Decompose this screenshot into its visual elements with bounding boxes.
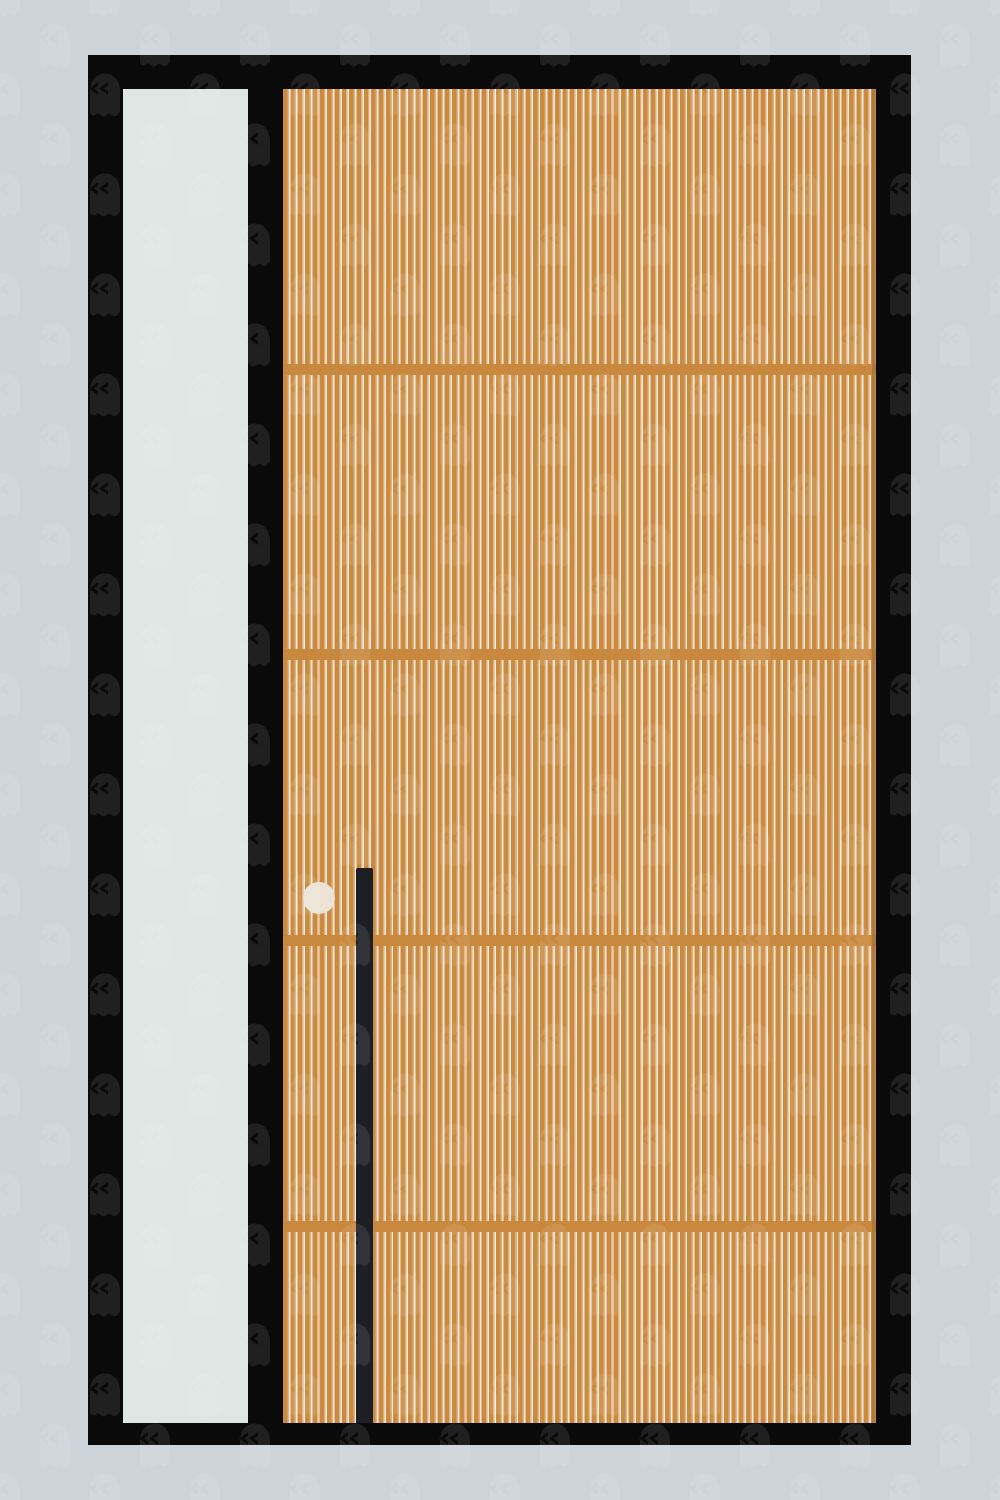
door-divider-rail	[283, 364, 876, 375]
door-handle[interactable]	[356, 868, 373, 1423]
door-edge-shadow	[872, 89, 876, 1423]
doorbell-button[interactable]	[303, 882, 335, 914]
sidelight-panel	[123, 89, 248, 1423]
front-door-scene	[0, 0, 1000, 1500]
door-divider-rail	[283, 649, 876, 660]
door-panel	[283, 89, 876, 1423]
